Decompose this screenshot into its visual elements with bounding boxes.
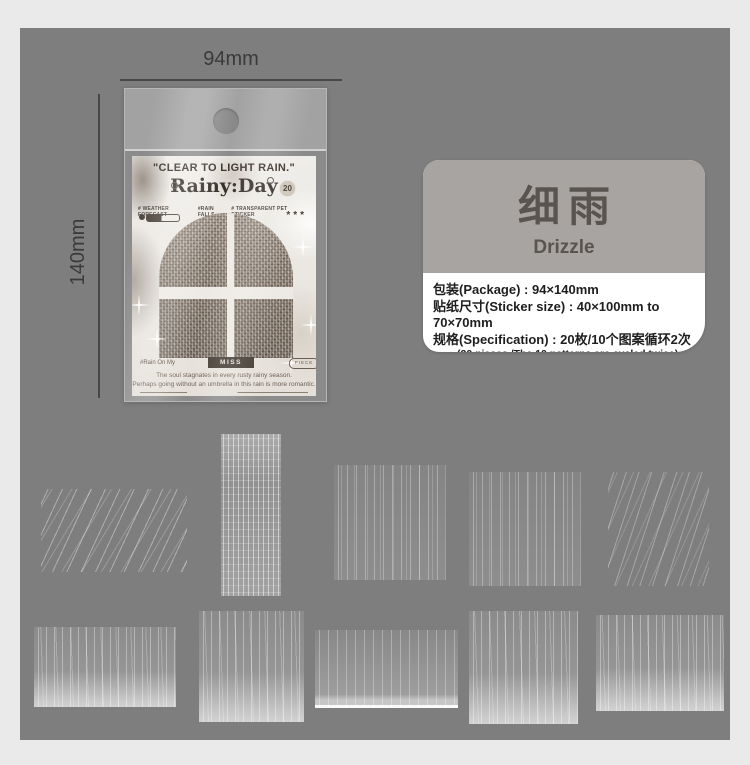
hang-hole-icon [213, 108, 239, 134]
height-dimension-line [98, 94, 100, 398]
product-board: 94mm 140mm "CLEAR TO LIGHT RAIN." Rainy:… [20, 28, 730, 740]
spec-sticker-size: 贴纸尺寸(Sticker size) : 40×100mm to 70×70mm [433, 299, 705, 332]
sparkle-icon [300, 314, 316, 336]
progress-meter-icon [146, 214, 180, 222]
sparkle-icon [132, 294, 150, 316]
miss-time-badge: MISS TIME [208, 357, 254, 368]
rain-sample-5 [608, 472, 709, 586]
package-label: "CLEAR TO LIGHT RAIN." Rainy:Day 20 # WE… [132, 156, 316, 396]
rain-window-illustration [159, 213, 293, 358]
info-card-body: 包装(Package) : 94×140mm 贴纸尺寸(Sticker size… [423, 273, 705, 352]
rain-sample-8 [315, 630, 458, 708]
package-quote: "CLEAR TO LIGHT RAIN." [132, 162, 316, 174]
height-dimension-label: 140mm [67, 206, 93, 298]
rain-sample-2 [221, 434, 281, 596]
rain-sample-4 [469, 472, 581, 586]
rain-sample-6 [34, 627, 176, 707]
ring-decoration-icon [267, 177, 274, 184]
width-dimension-line [120, 79, 342, 81]
window-horizontal-divider [159, 287, 293, 299]
count-badge: 20 [280, 181, 295, 196]
footer-decoration-line [140, 392, 308, 393]
info-card: 细雨 Drizzle 包装(Package) : 94×140mm 贴纸尺寸(S… [423, 160, 705, 352]
spec-specification: 规格(Specification) : 20枚/10个图案循环2次 [433, 332, 705, 349]
product-title-chinese: 细雨 [423, 160, 705, 234]
spec-note: (20 pieces /The 10 patterns are cycled t… [457, 348, 705, 352]
info-card-header: 细雨 Drizzle [423, 160, 705, 273]
rain-sample-7 [199, 611, 304, 722]
meter-dot-icon [139, 214, 145, 220]
asterisk-stars-icon: *** [286, 210, 307, 221]
rain-sample-10 [596, 615, 724, 711]
window-vertical-divider [227, 213, 234, 358]
piece-pill-badge: PIECE [289, 358, 316, 369]
sparkle-icon [292, 236, 314, 258]
package-caption: The soul stagnates in every rusty rainy … [132, 371, 316, 389]
rain-sample-1 [41, 489, 187, 572]
spec-package-size: 包装(Package) : 94×140mm [433, 282, 705, 299]
ring-decoration-icon [171, 182, 178, 189]
caption-line-1: The soul stagnates in every rusty rainy … [132, 371, 316, 380]
package-bag: "CLEAR TO LIGHT RAIN." Rainy:Day 20 # WE… [124, 88, 327, 402]
bag-flap [125, 89, 326, 151]
rain-sample-9 [469, 611, 578, 724]
width-dimension-label: 94mm [120, 48, 342, 71]
rain-sample-3 [334, 465, 446, 580]
caption-line-2: Perhaps going without an umbrella in thi… [132, 380, 316, 389]
product-title-english: Drizzle [423, 237, 705, 259]
rain-on-my-hashtag: #Rain On My [140, 360, 175, 366]
